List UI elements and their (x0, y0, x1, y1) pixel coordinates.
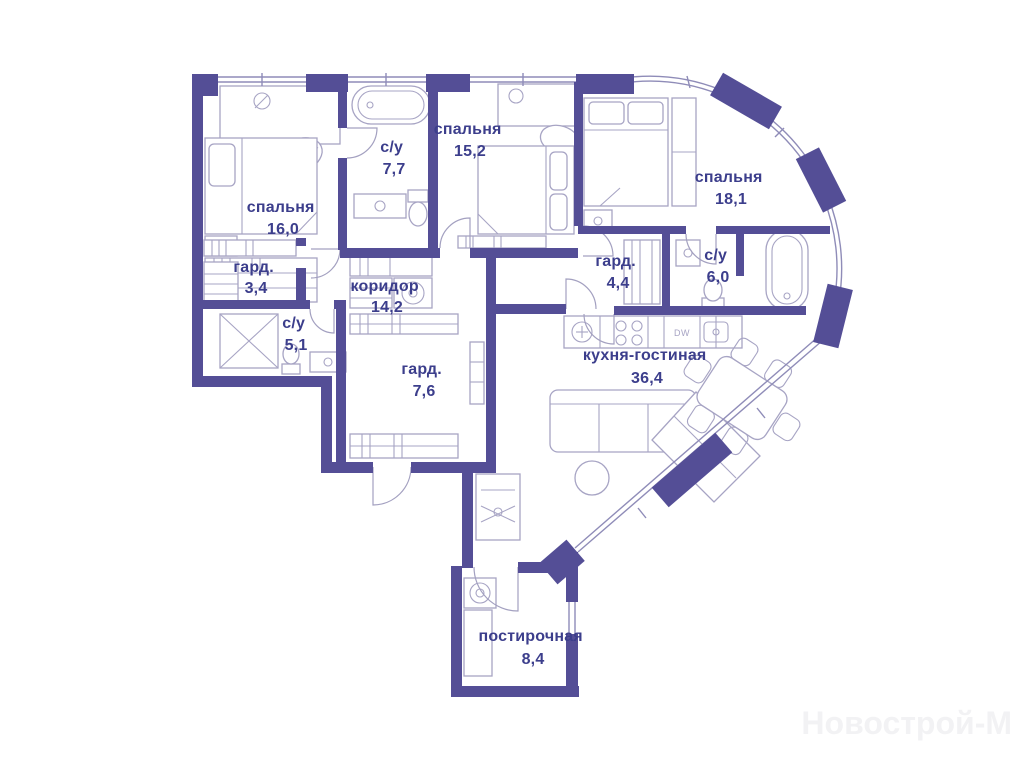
room-label-wardrobe-7-6: гард. 7,6 (401, 361, 446, 400)
room-label-bedroom-18: спальня 18,1 (695, 169, 768, 208)
room-label-bathroom-7-7: с/у 7,7 (380, 139, 408, 178)
room-label-bathroom-5-1: с/у 5,1 (282, 315, 310, 354)
furniture-bathroom-7-7 (352, 86, 430, 226)
room-label-bathroom-6-0: с/у 6,0 (704, 247, 732, 286)
furniture-wardrobe-4-4 (624, 240, 660, 304)
furniture-laundry (464, 578, 496, 676)
furniture-bedroom-15 (458, 84, 583, 248)
room-label-kitchen-living: кухня-гостиная 36,4 (583, 347, 711, 387)
floor-plan-drawing: DW (0, 0, 1024, 768)
furniture-bedroom-18 (584, 98, 696, 232)
watermark: Новострой-М (801, 705, 1012, 741)
dishwasher-label: DW (674, 328, 690, 338)
floor-plan-page: DW (0, 0, 1024, 768)
